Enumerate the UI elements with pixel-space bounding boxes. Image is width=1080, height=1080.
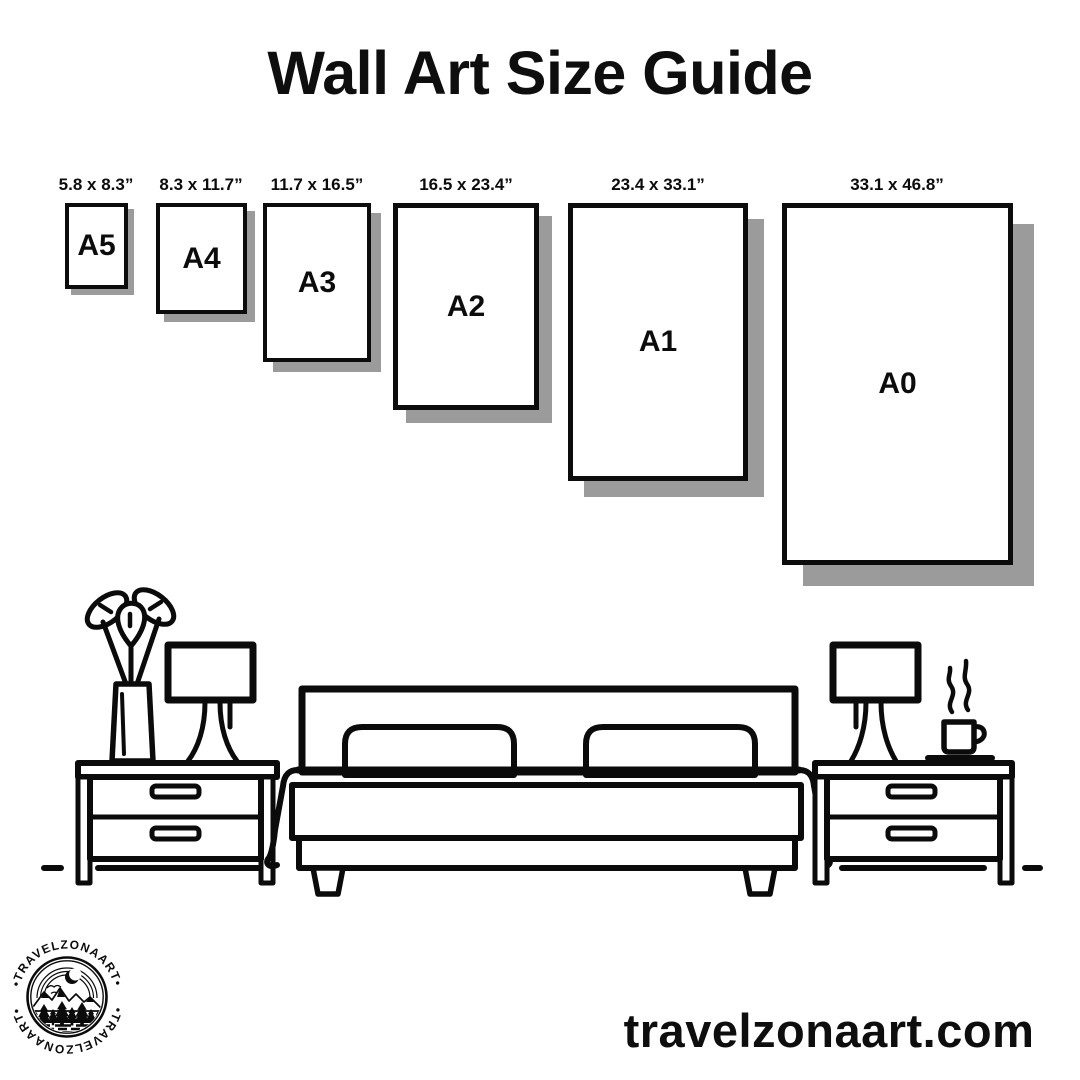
size-box-a0: A0: [782, 203, 1013, 565]
nightstand-right-icon: [815, 763, 1012, 883]
size-box-a1: A1: [568, 203, 748, 481]
nightstand-left-icon: [78, 763, 277, 883]
size-code-a5: A5: [77, 229, 115, 263]
bedroom-illustration: [0, 575, 1080, 905]
size-dimensions-a2: 16.5 x 23.4”: [386, 174, 546, 196]
size-dimensions-a0: 33.1 x 46.8”: [817, 174, 977, 196]
size-dimensions-a1: 23.4 x 33.1”: [578, 174, 738, 196]
page-title: Wall Art Size Guide: [0, 40, 1080, 106]
size-box-a5: A5: [65, 203, 128, 289]
size-box-a2: A2: [393, 203, 539, 410]
size-code-a4: A4: [182, 242, 220, 276]
crescent-moon-icon: [65, 968, 82, 984]
table-lamp-right-icon: [833, 645, 918, 761]
size-guide-poster: Wall Art Size Guide 5.8 x 8.3” 8.3 x 11.…: [0, 0, 1080, 1080]
size-code-a2: A2: [447, 290, 485, 324]
brand-badge-logo: •TRAVELZONAART• •TRAVELZONAART•: [6, 936, 128, 1058]
table-lamp-left-icon: [168, 645, 253, 761]
size-dimensions-a3: 11.7 x 16.5”: [237, 174, 397, 196]
size-code-a3: A3: [298, 266, 336, 300]
size-box-a4: A4: [156, 203, 247, 314]
size-code-a0: A0: [878, 367, 916, 401]
double-bed-icon: [267, 689, 830, 894]
size-code-a1: A1: [639, 325, 677, 359]
website-url: travelzonaart.com: [598, 1004, 1060, 1058]
size-box-a3: A3: [263, 203, 371, 362]
coffee-cup-icon: [928, 661, 992, 758]
